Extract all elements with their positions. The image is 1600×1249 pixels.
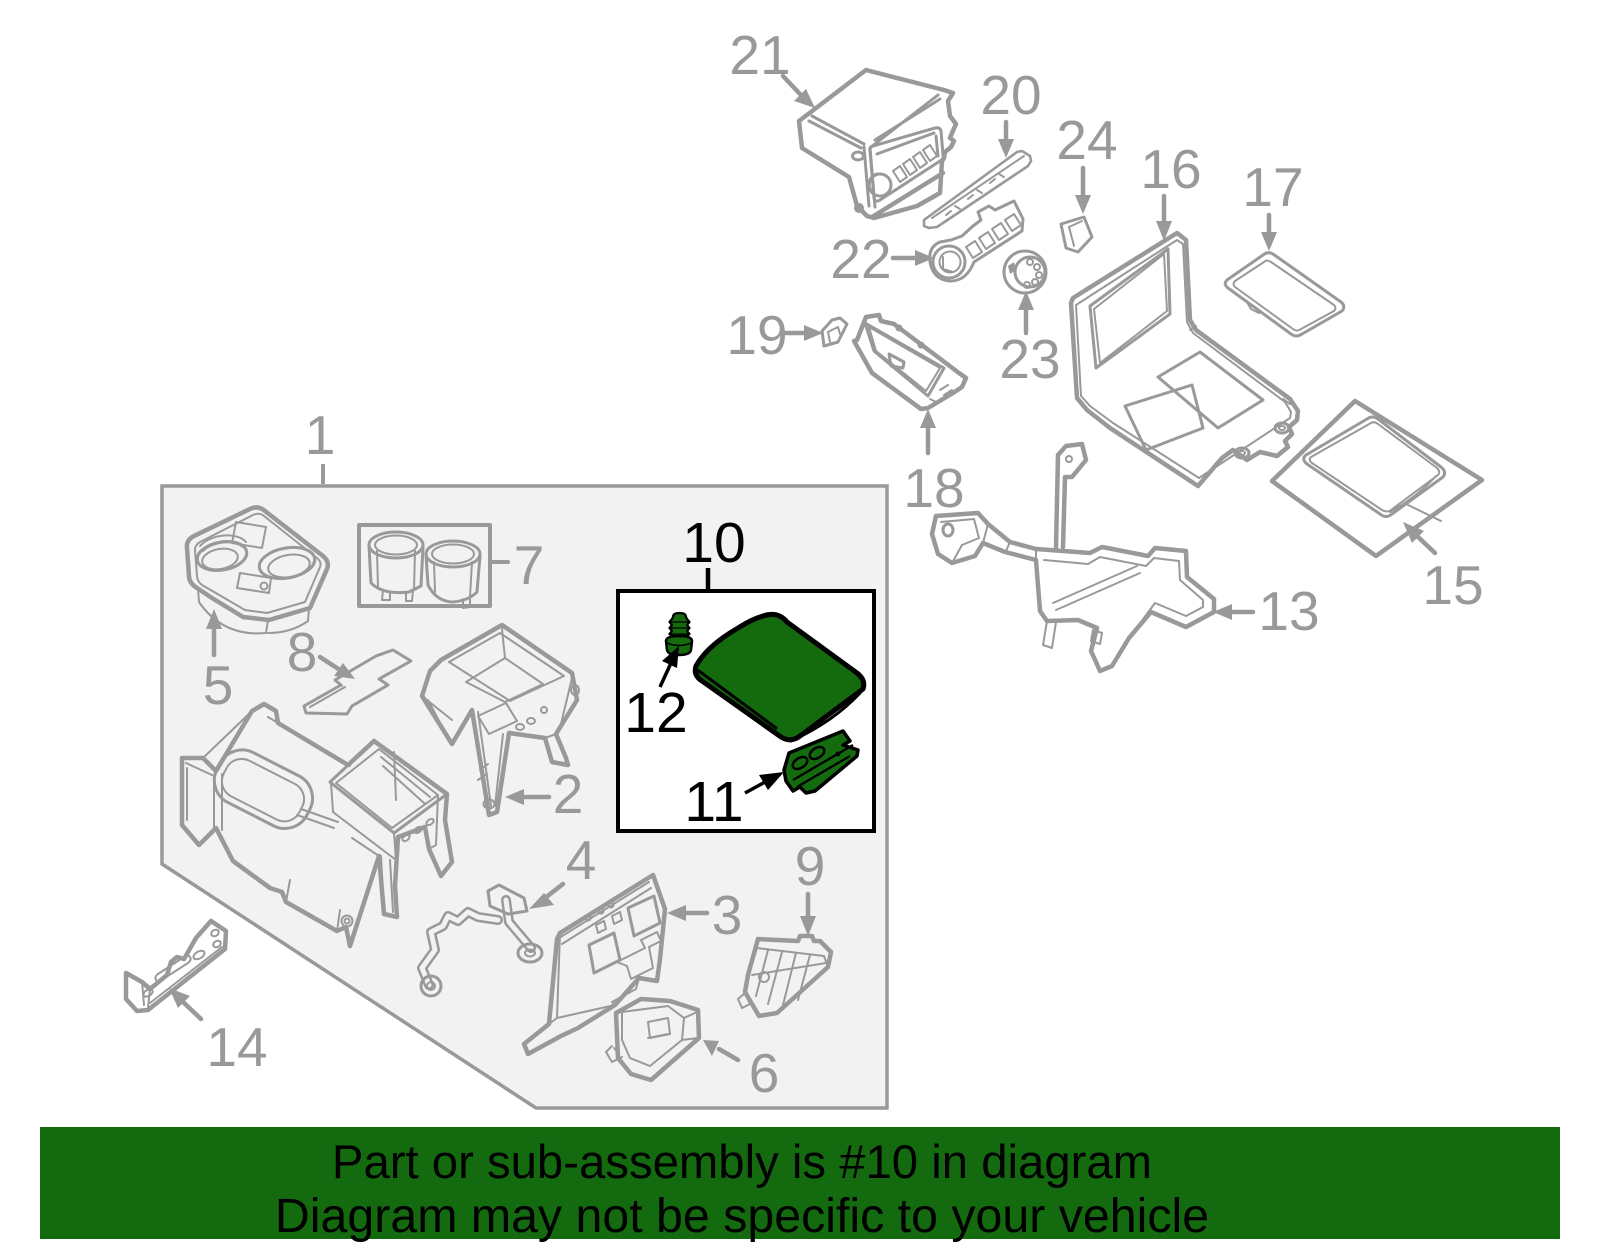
svg-text:20: 20 <box>980 64 1041 126</box>
svg-text:23: 23 <box>999 328 1060 390</box>
svg-text:22: 22 <box>830 228 891 290</box>
svg-text:16: 16 <box>1140 138 1201 200</box>
svg-text:10: 10 <box>682 511 745 575</box>
svg-text:15: 15 <box>1422 554 1483 616</box>
svg-text:11: 11 <box>684 770 743 834</box>
svg-text:Part or sub-assembly is #10 in: Part or sub-assembly is #10 in diagram <box>332 1136 1152 1189</box>
svg-text:1: 1 <box>305 404 336 466</box>
svg-text:24: 24 <box>1056 109 1117 171</box>
svg-text:8: 8 <box>287 621 318 683</box>
svg-text:13: 13 <box>1258 580 1319 642</box>
svg-text:4: 4 <box>566 829 597 891</box>
svg-text:3: 3 <box>712 884 743 946</box>
svg-text:7: 7 <box>514 534 545 596</box>
svg-text:Diagram may not be specific to: Diagram may not be specific to your vehi… <box>275 1189 1209 1243</box>
svg-text:18: 18 <box>903 457 964 519</box>
svg-text:14: 14 <box>206 1016 267 1078</box>
svg-text:9: 9 <box>795 835 826 897</box>
svg-text:2: 2 <box>553 763 584 825</box>
svg-text:6: 6 <box>749 1042 780 1104</box>
svg-text:17: 17 <box>1242 156 1303 218</box>
svg-text:19: 19 <box>726 304 787 366</box>
svg-text:12: 12 <box>624 681 687 745</box>
svg-text:5: 5 <box>203 654 234 716</box>
